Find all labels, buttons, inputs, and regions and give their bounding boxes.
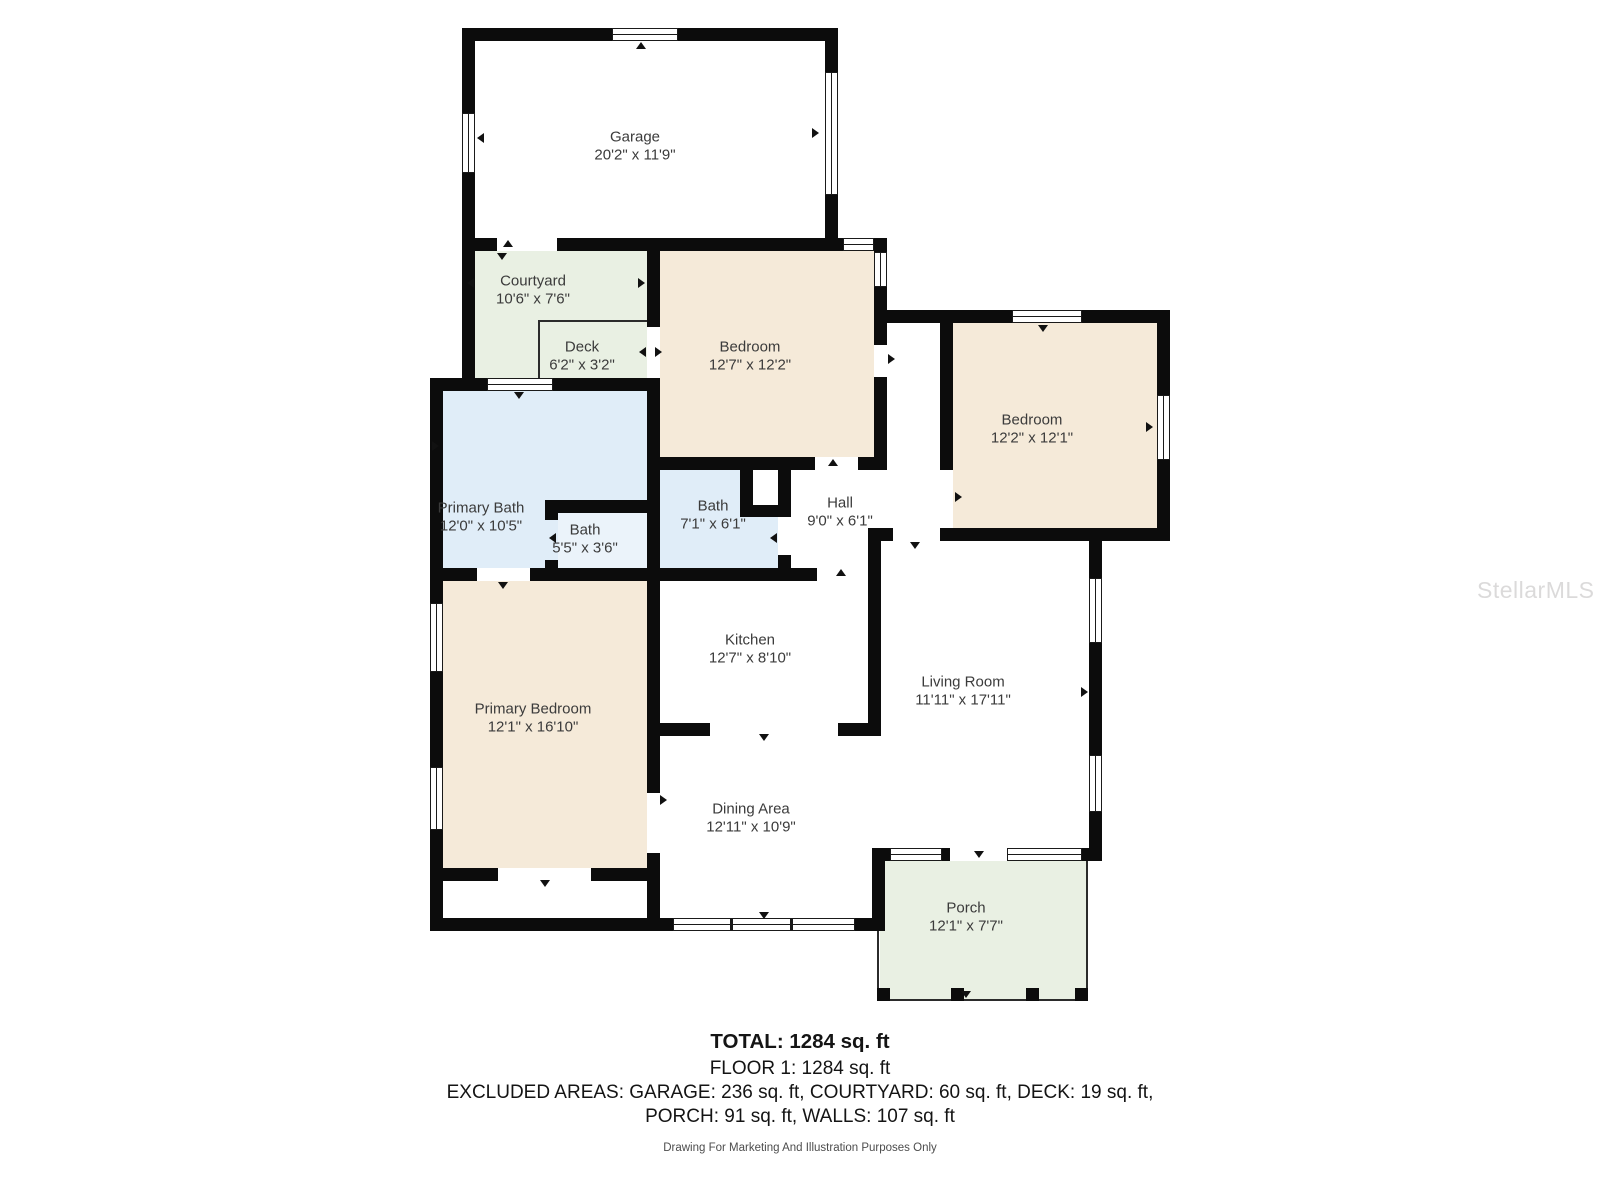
room-name: Kitchen bbox=[709, 632, 791, 650]
window bbox=[430, 603, 443, 672]
window bbox=[1089, 755, 1102, 812]
room-dims: 12'2" x 12'1" bbox=[991, 430, 1073, 448]
wall bbox=[530, 568, 817, 581]
wall bbox=[940, 310, 953, 470]
floor-area-text: FLOOR 1: 1284 sq. ft bbox=[0, 1058, 1600, 1080]
window-mullion bbox=[730, 918, 733, 931]
deck-rail bbox=[538, 320, 540, 378]
wall bbox=[838, 723, 881, 736]
door-marker bbox=[660, 795, 667, 805]
door-marker bbox=[639, 347, 646, 357]
porch-post bbox=[1026, 988, 1039, 1001]
wall bbox=[778, 457, 791, 515]
room-dims: 12'0" x 10'5" bbox=[438, 518, 525, 536]
garage-door bbox=[825, 72, 838, 195]
door-marker bbox=[467, 278, 474, 288]
door-marker bbox=[477, 133, 484, 143]
room-label-hall: Hall 9'0" x 6'1" bbox=[807, 495, 873, 532]
wall bbox=[1082, 848, 1102, 861]
door-marker bbox=[655, 347, 662, 357]
area-summary: TOTAL: 1284 sq. ft FLOOR 1: 1284 sq. ft … bbox=[0, 1030, 1600, 1154]
wall bbox=[462, 238, 497, 251]
room-label-dining-area: Dining Area 12'11" x 10'9" bbox=[706, 801, 796, 838]
window bbox=[673, 918, 855, 931]
room-dims: 5'5" x 3'6" bbox=[552, 540, 618, 558]
door-marker bbox=[836, 569, 846, 576]
wall bbox=[443, 868, 498, 881]
room-name: Courtyard bbox=[496, 273, 570, 291]
wall bbox=[430, 918, 673, 931]
door-marker bbox=[1038, 325, 1048, 332]
door-marker bbox=[770, 533, 777, 543]
room-dims: 12'1" x 16'10" bbox=[475, 719, 592, 737]
room-label-kitchen: Kitchen 12'7" x 8'10" bbox=[709, 632, 791, 669]
room-name: Porch bbox=[929, 900, 1003, 918]
room-dims: 10'6" x 7'6" bbox=[496, 291, 570, 309]
room-label-deck: Deck 6'2" x 3'2" bbox=[549, 339, 615, 376]
room-dims: 20'2" x 11'9" bbox=[594, 147, 675, 165]
floor-plan-canvas: Garage 20'2" x 11'9" Courtyard 10'6" x 7… bbox=[0, 0, 1600, 1200]
door-marker bbox=[638, 278, 645, 288]
room-dims: 12'1" x 7'7" bbox=[929, 918, 1003, 936]
wall bbox=[647, 853, 660, 918]
window bbox=[430, 767, 443, 830]
wall bbox=[430, 568, 477, 581]
porch-post bbox=[877, 988, 890, 1001]
excluded-areas-text-line1: EXCLUDED AREAS: GARAGE: 236 sq. ft, COUR… bbox=[0, 1082, 1600, 1104]
door-marker bbox=[503, 240, 513, 247]
porch-rail bbox=[877, 999, 1088, 1001]
door-marker bbox=[498, 582, 508, 589]
room-label-garage: Garage 20'2" x 11'9" bbox=[594, 129, 675, 166]
room-name: Bath bbox=[552, 522, 618, 540]
room-label-primary-bedroom: Primary Bedroom 12'1" x 16'10" bbox=[475, 701, 592, 738]
room-dims: 12'7" x 12'2" bbox=[709, 357, 791, 375]
room-dims: 12'7" x 8'10" bbox=[709, 650, 791, 668]
window bbox=[487, 378, 553, 391]
door-marker bbox=[759, 734, 769, 741]
porch-rail bbox=[1086, 861, 1088, 1001]
room-label-courtyard: Courtyard 10'6" x 7'6" bbox=[496, 273, 570, 310]
wall bbox=[660, 723, 710, 736]
room-name: Primary Bath bbox=[438, 500, 525, 518]
wall bbox=[591, 868, 660, 881]
room-dims: 12'11" x 10'9" bbox=[706, 819, 796, 837]
room-label-bath-small: Bath 5'5" x 3'6" bbox=[552, 522, 618, 559]
window bbox=[1157, 395, 1170, 460]
room-name: Bedroom bbox=[709, 339, 791, 357]
deck-rail bbox=[538, 320, 647, 322]
door-marker bbox=[974, 851, 984, 858]
wall bbox=[868, 541, 881, 736]
room-name: Dining Area bbox=[706, 801, 796, 819]
room-label-porch: Porch 12'1" x 7'7" bbox=[929, 900, 1003, 937]
wall bbox=[462, 28, 475, 378]
door-marker bbox=[1146, 422, 1153, 432]
wall bbox=[647, 380, 660, 568]
door-marker bbox=[812, 128, 819, 138]
wall bbox=[545, 500, 558, 520]
door-marker bbox=[955, 492, 962, 502]
room-dims: 6'2" x 3'2" bbox=[549, 357, 615, 375]
door-marker bbox=[636, 42, 646, 49]
room-name: Garage bbox=[594, 129, 675, 147]
room-label-primary-bath: Primary Bath 12'0" x 10'5" bbox=[438, 500, 525, 537]
door-marker bbox=[759, 912, 769, 919]
excluded-areas-text-line2: PORCH: 91 sq. ft, WALLS: 107 sq. ft bbox=[0, 1106, 1600, 1128]
porch-post bbox=[1075, 988, 1088, 1001]
window bbox=[843, 238, 874, 251]
wall bbox=[874, 287, 887, 345]
door-marker bbox=[432, 441, 439, 451]
wall bbox=[557, 238, 838, 251]
room-name: Primary Bedroom bbox=[475, 701, 592, 719]
wall bbox=[825, 41, 838, 72]
door-marker bbox=[910, 542, 920, 549]
wall bbox=[647, 581, 660, 793]
wall bbox=[545, 500, 660, 513]
door-marker bbox=[540, 880, 550, 887]
room-label-bath: Bath 7'1" x 6'1" bbox=[680, 498, 746, 535]
window bbox=[874, 252, 887, 287]
door-marker bbox=[828, 459, 838, 466]
room-name: Bath bbox=[680, 498, 746, 516]
door-marker bbox=[1081, 687, 1088, 697]
window bbox=[612, 28, 678, 41]
window-mullion bbox=[790, 918, 793, 931]
room-name: Hall bbox=[807, 495, 873, 513]
window bbox=[1012, 310, 1082, 323]
wall bbox=[940, 528, 1170, 541]
wall bbox=[553, 378, 660, 391]
room-name: Bedroom bbox=[991, 412, 1073, 430]
window bbox=[1089, 578, 1102, 643]
disclaimer-text: Drawing For Marketing And Illustration P… bbox=[0, 1142, 1600, 1154]
room-name: Living Room bbox=[915, 674, 1011, 692]
wall bbox=[874, 377, 887, 470]
total-area-text: TOTAL: 1284 sq. ft bbox=[0, 1030, 1600, 1054]
door-marker bbox=[497, 253, 507, 260]
room-label-bedroom-center: Bedroom 12'7" x 12'2" bbox=[709, 339, 791, 376]
wall bbox=[647, 238, 660, 327]
window bbox=[1007, 848, 1082, 861]
window bbox=[890, 848, 942, 861]
bath-closet-fill bbox=[753, 470, 778, 505]
door-marker bbox=[514, 392, 524, 399]
room-name: Deck bbox=[549, 339, 615, 357]
room-dims: 11'11" x 17'11" bbox=[915, 692, 1011, 710]
room-dims: 9'0" x 6'1" bbox=[807, 513, 873, 531]
window bbox=[462, 113, 475, 173]
wall bbox=[872, 848, 885, 931]
room-label-bedroom-right: Bedroom 12'2" x 12'1" bbox=[991, 412, 1073, 449]
room-dims: 7'1" x 6'1" bbox=[680, 516, 746, 534]
stellar-mls-watermark: StellarMLS bbox=[1477, 577, 1594, 604]
room-label-living-room: Living Room 11'11" x 17'11" bbox=[915, 674, 1011, 711]
door-marker bbox=[961, 991, 971, 998]
door-marker bbox=[888, 354, 895, 364]
wall bbox=[942, 848, 950, 861]
